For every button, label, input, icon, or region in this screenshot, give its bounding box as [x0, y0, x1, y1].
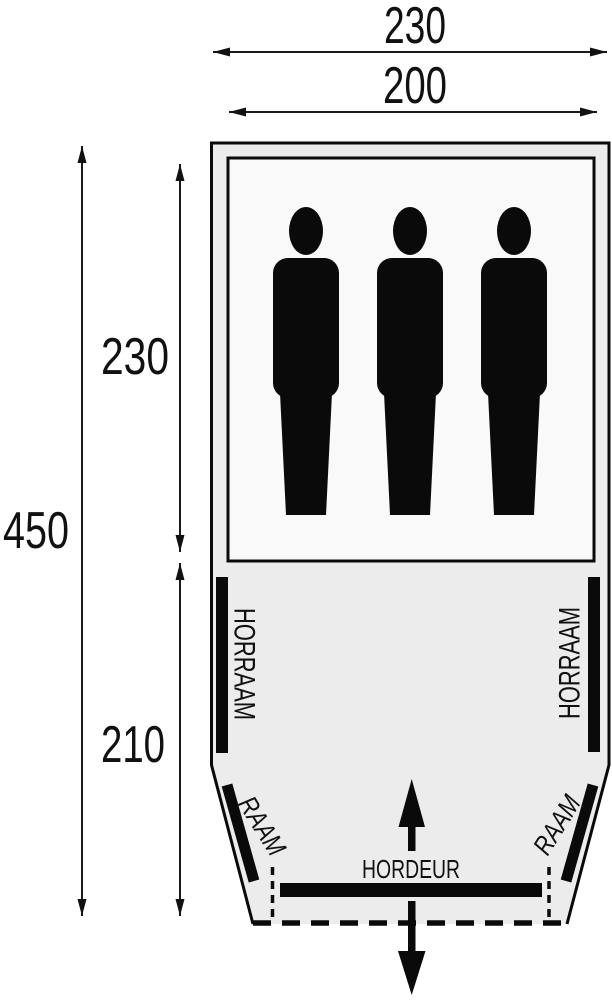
door-label: HORDEUR [362, 854, 460, 884]
dim-label-outer-width: 230 [384, 0, 446, 55]
dim-label-porch-depth: 210 [101, 716, 165, 774]
tent-floorplan-svg: HORRAAM HORRAAM RAAM RAAM HORDEUR 230 20… [0, 0, 612, 1000]
horraam-window-right [588, 577, 600, 752]
horraam-label-right: HORRAAM [554, 607, 587, 719]
door-threshold [280, 883, 542, 897]
tent-floorplan-diagram: HORRAAM HORRAAM RAAM RAAM HORDEUR 230 20… [0, 0, 612, 1000]
horraam-window-left [216, 577, 228, 753]
horraam-label-left: HORRAAM [228, 608, 261, 720]
dim-label-cabin-depth: 230 [101, 328, 169, 386]
dim-label-inner-width: 200 [383, 57, 447, 115]
dim-label-total-depth: 450 [3, 502, 69, 560]
